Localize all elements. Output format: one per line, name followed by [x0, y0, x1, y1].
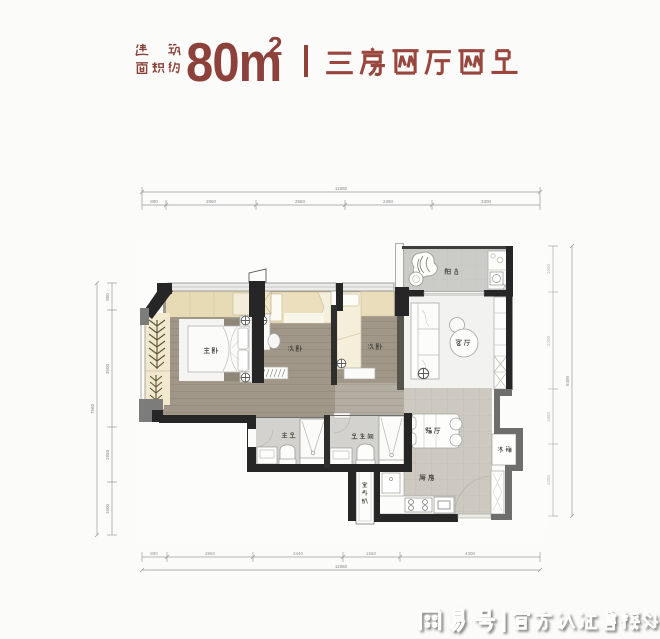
svg-text:80m: 80m [186, 32, 281, 93]
svg-text:3300: 3300 [481, 199, 492, 204]
svg-text:1650: 1650 [105, 449, 110, 460]
svg-text:2250: 2250 [546, 474, 551, 485]
svg-text:2860: 2860 [206, 199, 217, 204]
svg-text:7560: 7560 [90, 403, 95, 414]
svg-text:800: 800 [150, 199, 158, 204]
svg-text:2450: 2450 [383, 199, 394, 204]
svg-text:2440: 2440 [293, 551, 304, 556]
svg-text:3500: 3500 [105, 363, 110, 374]
svg-text:3200: 3200 [546, 335, 551, 346]
svg-text:4300: 4300 [465, 551, 476, 556]
svg-text:800: 800 [105, 293, 110, 301]
svg-text:1560: 1560 [366, 551, 377, 556]
svg-text:800: 800 [150, 551, 158, 556]
svg-text:8400: 8400 [565, 375, 570, 386]
svg-text:2860: 2860 [205, 551, 216, 556]
svg-text:1600: 1600 [105, 503, 110, 514]
svg-text:2550: 2550 [295, 199, 306, 204]
svg-text:11950: 11950 [335, 186, 348, 191]
svg-text:1500: 1500 [546, 263, 551, 274]
svg-text:11950: 11950 [335, 564, 348, 569]
svg-text:2: 2 [268, 31, 282, 61]
svg-text:1850: 1850 [546, 411, 551, 422]
